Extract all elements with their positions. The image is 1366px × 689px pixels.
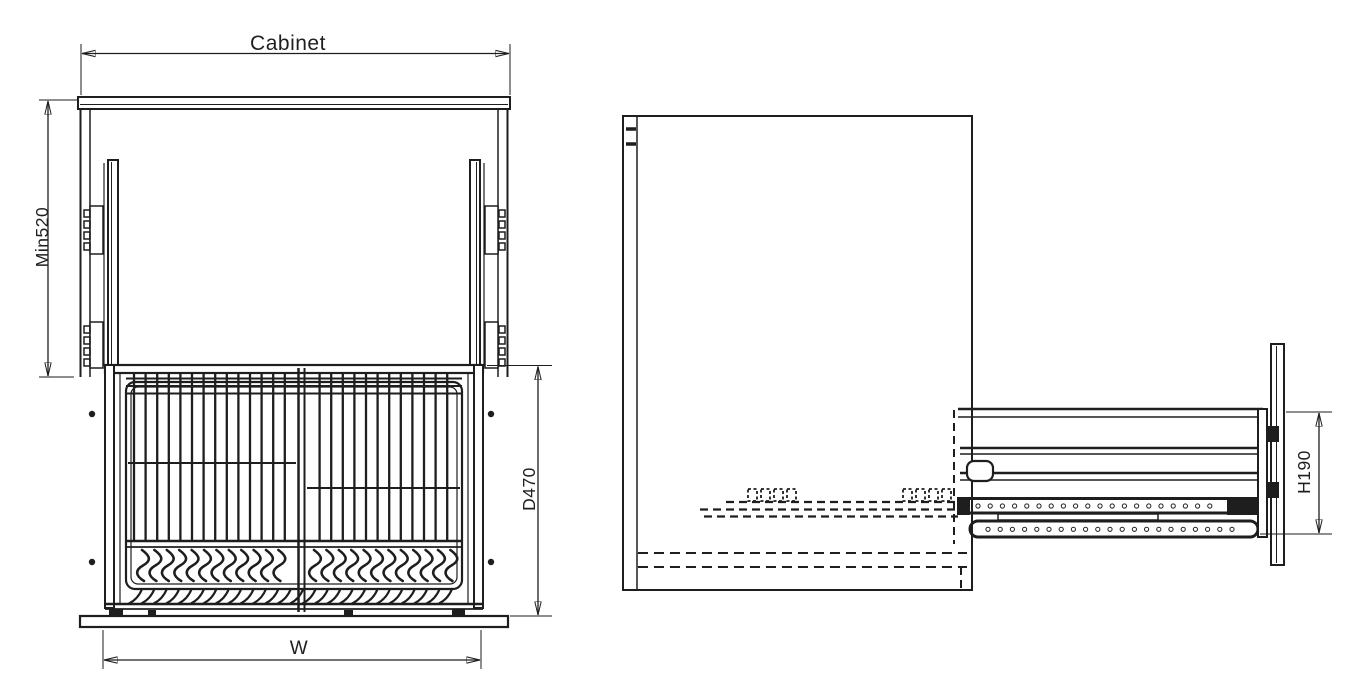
technical-drawing: Cabinet Min520 [0, 0, 1366, 689]
basket-vertical-wires [134, 373, 447, 540]
hook-wire [141, 589, 154, 604]
w-dimension: W [103, 630, 481, 669]
bracket-tooth [499, 337, 505, 344]
w-dimension-label: W [290, 638, 308, 659]
min520-dimension-label: Min520 [32, 207, 52, 267]
mounting-bracket [90, 206, 103, 254]
rail-bar [108, 160, 118, 368]
bracket-tooth [84, 243, 90, 250]
ball-bearing [1061, 504, 1065, 508]
bracket-tooth [499, 243, 505, 250]
plate-divider [137, 550, 149, 581]
hook-wire [327, 589, 340, 604]
ball-bearing [1132, 527, 1136, 531]
ball-bearing [1159, 504, 1163, 508]
ball-bearing [1074, 504, 1078, 508]
plate-divider [446, 550, 458, 581]
rail-hook [967, 461, 993, 481]
cabinet-dimension-label: Cabinet [250, 32, 326, 55]
bracket-tooth [499, 348, 505, 355]
hook-wire [129, 589, 142, 604]
basket-foot [452, 609, 465, 615]
ball-bearing [1181, 527, 1185, 531]
ball-bearing [1196, 504, 1200, 508]
hook-wire [253, 589, 266, 604]
plate-divider [150, 550, 162, 581]
ball-bearing [1183, 504, 1187, 508]
basket-foot [148, 610, 156, 615]
slide-channel [970, 521, 1258, 537]
hook-wire [191, 589, 204, 604]
d470-dimension-label: D470 [519, 467, 539, 511]
plate-dividers [137, 550, 457, 581]
ball-bearing [1206, 527, 1210, 531]
plate-divider [371, 550, 383, 581]
plate-divider [433, 550, 445, 581]
plate-divider [236, 550, 248, 581]
hook-wire [179, 589, 192, 604]
rail-bar [470, 160, 480, 368]
mounting-bracket [90, 322, 103, 368]
ball-bearing [1145, 527, 1149, 531]
hook-wire [290, 589, 303, 604]
min520-dimension: Min520 [32, 100, 77, 377]
hook-wire [340, 589, 353, 604]
plate-divider [334, 550, 346, 581]
ball-bearing [1023, 527, 1027, 531]
ball-bearing [1122, 504, 1126, 508]
bottom-plate [80, 616, 508, 627]
plate-divider [384, 550, 396, 581]
basket-side [957, 409, 1267, 537]
ball-bearing [1084, 527, 1088, 531]
side-view: H190 [623, 116, 1332, 590]
bracket-tooth [499, 221, 505, 228]
ball-bearing [1049, 504, 1053, 508]
ball-bearing [986, 527, 990, 531]
hook-wire [228, 589, 241, 604]
ball-bearing [1230, 527, 1234, 531]
plate-divider [396, 550, 408, 581]
panel-bracket [1266, 482, 1279, 498]
bracket-tooth [499, 210, 505, 217]
hook-wire [166, 589, 179, 604]
plate-divider [249, 550, 261, 581]
plate-divider [346, 550, 358, 581]
mounting-bracket [485, 322, 498, 368]
hook-wire [427, 589, 440, 604]
plate-divider [408, 550, 420, 581]
bracket-tooth [84, 221, 90, 228]
plate-divider [421, 550, 433, 581]
screw [89, 559, 95, 565]
bracket-tooth [84, 337, 90, 344]
plate-divider [274, 550, 286, 581]
left-rail-assembly [90, 160, 118, 368]
h190-dimension-label: H190 [1294, 450, 1314, 494]
mounting-bracket [485, 206, 498, 254]
slide-tray [998, 514, 1158, 520]
hook-wire [389, 589, 402, 604]
hook-wire [265, 589, 278, 604]
ball-bearing [1157, 527, 1161, 531]
hook-wire [315, 589, 328, 604]
bracket-teeth [84, 210, 505, 366]
plate-divider [174, 550, 186, 581]
ball-bearings [986, 527, 1234, 531]
ball-bearing [1218, 527, 1222, 531]
basket-front [80, 365, 508, 627]
ball-bearing [1010, 527, 1014, 531]
ball-bearing [1193, 527, 1197, 531]
ball-bearing [1047, 527, 1051, 531]
ball-bearing [1171, 504, 1175, 508]
ball-bearing [1135, 504, 1139, 508]
ball-bearing [1025, 504, 1029, 508]
bracket-tooth [84, 359, 90, 366]
ball-bearing [1037, 504, 1041, 508]
front-view: Cabinet Min520 [32, 32, 552, 669]
d470-dimension: D470 [487, 366, 552, 617]
hook-wire [278, 589, 291, 604]
basket-left-column [105, 365, 114, 608]
bracket-tooth [84, 210, 90, 217]
ball-bearing [1096, 527, 1100, 531]
ball-bearing [1035, 527, 1039, 531]
ball-bearing [1110, 504, 1114, 508]
cabinet-side-panel [623, 116, 972, 590]
screw [89, 411, 95, 417]
ball-bearing [988, 504, 992, 508]
ball-bearing [1000, 504, 1004, 508]
bracket-tooth [499, 326, 505, 333]
ball-bearing [1147, 504, 1151, 508]
technical-drawing-page: Cabinet Min520 [0, 0, 1366, 689]
plate-divider [212, 550, 224, 581]
plate-divider [322, 550, 334, 581]
cabinet-width-dimension: Cabinet [81, 32, 510, 95]
hook-wire [154, 589, 167, 604]
hook-wire [377, 589, 390, 604]
hook-wire [414, 589, 427, 604]
basket-foot [109, 609, 123, 615]
bracket-tooth [84, 232, 90, 239]
bottom-hook-wires [129, 589, 452, 604]
front-panel [1271, 344, 1284, 565]
ball-bearing [1169, 527, 1173, 531]
ball-bearing [1013, 504, 1017, 508]
bracket-tooth [84, 326, 90, 333]
ball-bearing [1208, 504, 1212, 508]
plate-divider [162, 550, 174, 581]
ball-bearing [976, 504, 980, 508]
plate-divider [359, 550, 371, 581]
screw [488, 559, 494, 565]
ball-bearing [998, 527, 1002, 531]
slide-end-cap [1227, 497, 1260, 515]
hook-wire [216, 589, 229, 604]
hook-wire [439, 589, 452, 604]
ball-bearing [1059, 527, 1063, 531]
basket-top-rail [105, 365, 483, 373]
plate-divider [187, 550, 199, 581]
bracket-tooth [84, 348, 90, 355]
plate-divider [224, 550, 236, 581]
ball-bearing [1098, 504, 1102, 508]
ball-bearings [976, 504, 1212, 508]
hook-wire [352, 589, 365, 604]
slide-end-cap [957, 497, 970, 515]
right-rail-assembly [470, 160, 498, 368]
ball-bearing [1108, 527, 1112, 531]
hook-wire [203, 589, 216, 604]
plate-divider [199, 550, 211, 581]
plate-divider [309, 550, 321, 581]
basket-foot [344, 610, 353, 615]
ball-bearing [1086, 504, 1090, 508]
bracket-tooth [499, 232, 505, 239]
hook-wire [402, 589, 415, 604]
basket-front-bar [1258, 409, 1267, 537]
basket-right-column [474, 365, 483, 608]
screw [488, 411, 494, 417]
bracket-tooth [499, 359, 505, 366]
ball-bearing [1071, 527, 1075, 531]
plate-divider [261, 550, 273, 581]
hook-wire [365, 589, 378, 604]
panel-bracket [1266, 426, 1279, 442]
hook-wire [241, 589, 254, 604]
ball-bearing [1120, 527, 1124, 531]
cabinet-top-panel [78, 97, 510, 109]
